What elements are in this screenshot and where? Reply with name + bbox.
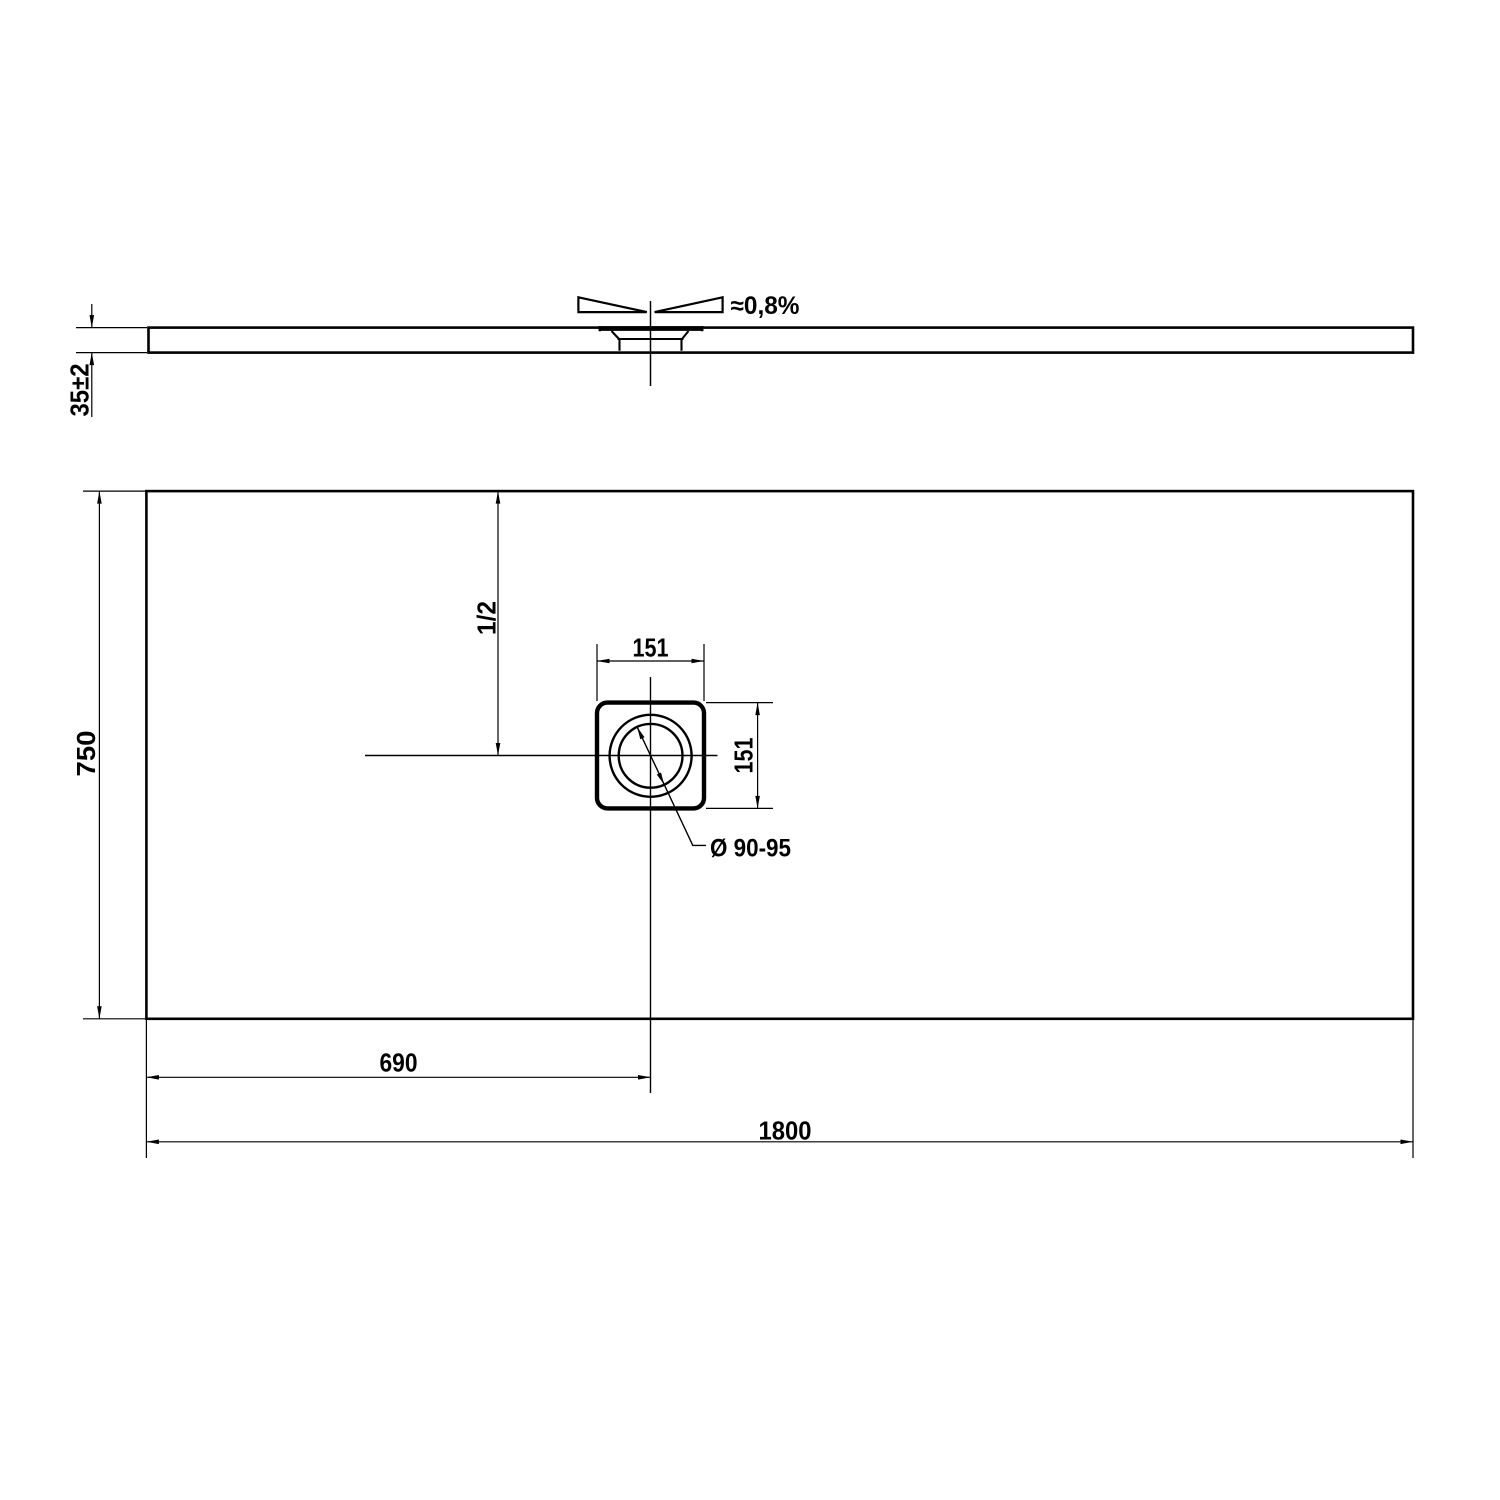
svg-text:1800: 1800 <box>759 1116 812 1146</box>
svg-text:151: 151 <box>633 633 669 663</box>
svg-text:690: 690 <box>380 1048 418 1078</box>
svg-text:≈0,8%: ≈0,8% <box>731 292 800 320</box>
svg-text:1/2: 1/2 <box>472 601 502 635</box>
svg-text:750: 750 <box>71 731 101 777</box>
svg-text:35±2: 35±2 <box>65 364 95 417</box>
svg-text:Ø 90-95: Ø 90-95 <box>710 835 791 863</box>
svg-text:151: 151 <box>729 738 759 774</box>
